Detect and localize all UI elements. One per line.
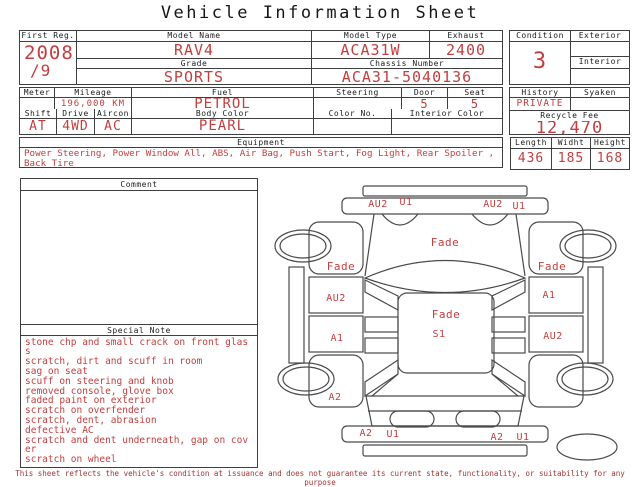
shift-label: Shift [20, 109, 56, 119]
label-front-bumper-left-a: AU2 [368, 199, 388, 210]
exterior-label: Exterior [570, 31, 629, 42]
label-left-rear-door: A1 [330, 333, 343, 344]
rear-slant-left [372, 374, 398, 396]
color-no-label: Color No. [313, 109, 391, 119]
shift-value: AT [20, 119, 56, 134]
equipment-label: Equipment [20, 138, 502, 148]
first-reg-month: /9 [24, 63, 76, 79]
left-rear-wheel [278, 363, 334, 395]
steering-label: Steering [313, 88, 401, 98]
body-color-value: PEARL [131, 119, 313, 134]
meter-label: Meter [20, 88, 54, 98]
width-label: Widht [551, 138, 590, 149]
interior-label: Interior [570, 57, 629, 69]
label-left-front-door: AU2 [326, 293, 346, 304]
steering-value [313, 98, 401, 109]
door-value: 5 [401, 98, 447, 109]
comment-text [21, 191, 257, 324]
condition-table: Condition 3 Exterior Interior [509, 30, 630, 85]
left-front-wheel-inner [280, 234, 326, 258]
syaken-label: Syaken [570, 88, 629, 98]
label-roof: Fade [432, 308, 461, 321]
right-sill [588, 267, 603, 363]
model-type-label: Model Type [311, 31, 429, 42]
roof [398, 293, 494, 373]
exhaust-label: Exhaust [429, 31, 502, 42]
left-rear-wheel-inner [283, 367, 329, 391]
label-front-bumper-right-b: U1 [512, 201, 525, 212]
right-rear-window [492, 338, 525, 353]
car-damage-diagram: AU2 U1 AU2 U1 Fade Fade Fade AU2 A1 Fade… [270, 183, 638, 465]
label-right-front-door: A1 [542, 290, 555, 301]
label-front-bumper-left-b: U1 [399, 197, 412, 208]
comment-box: Comment Special Note stone chp and small… [20, 178, 258, 468]
mileage-value: 196,000 KM [54, 98, 131, 109]
interior-color-label: Interior Color [391, 109, 502, 119]
label-rear-bumper-right-b: U1 [516, 432, 529, 443]
right-front-window [492, 317, 525, 332]
model-name-value: RAV4 [76, 42, 311, 59]
label-right-fender: Fade [538, 260, 567, 273]
special-note-item: stone chp and small crack on front glass [25, 338, 253, 358]
chassis-number-value: ACA31-5040136 [311, 69, 502, 84]
exhaust-value: 2400 [429, 42, 502, 59]
history-label: History [510, 88, 570, 98]
history-value: PRIVATE [510, 98, 570, 111]
width-value: 185 [551, 149, 590, 169]
disclaimer-text: This sheet reflects the vehicle's condit… [0, 469, 640, 487]
history-table: History Syaken PRIVATE Recycle Fee 12,47… [509, 87, 630, 135]
grade-value: SPORTS [76, 69, 311, 84]
condition-label: Condition [510, 31, 570, 42]
left-sill [289, 267, 304, 363]
spec-table-upper: Meter Mileage Fuel Steering Door Seat 19… [19, 87, 503, 110]
recycle-fee-value: 12,470 [510, 121, 629, 134]
label-roof-center: S1 [432, 329, 445, 340]
identity-table: First Reg. 2008 /9 Model Name RAV4 Grade… [19, 30, 503, 85]
length-label: Length [511, 138, 551, 149]
rear-lamp-right [456, 411, 500, 427]
right-front-pillar [492, 280, 525, 310]
left-front-window [365, 317, 398, 332]
recycle-fee-label: Recycle Fee [510, 111, 629, 121]
right-rear-wheel-inner [562, 367, 608, 391]
label-right-rear-door: AU2 [543, 331, 563, 342]
right-front-wheel [560, 230, 616, 262]
right-rear-fender [529, 355, 583, 407]
special-note-list: stone chp and small crack on front glass… [21, 336, 257, 467]
rear-lamp-left [390, 411, 434, 427]
comment-label: Comment [21, 179, 257, 191]
length-value: 436 [511, 149, 551, 169]
body-color-label: Body Color [131, 109, 313, 119]
vehicle-information-sheet: Vehicle Information Sheet First Reg. 200… [0, 0, 640, 480]
label-left-rear-fender: A2 [328, 392, 341, 403]
aircon-label: Aircon [94, 109, 131, 119]
rear-slant-right [492, 374, 518, 396]
condition-value: 3 [510, 42, 570, 84]
first-reg-value: 2008 /9 [20, 42, 76, 84]
first-reg-label: First Reg. [20, 31, 76, 42]
windshield [365, 261, 525, 293]
height-value: 168 [590, 149, 629, 169]
hood-edge-left [365, 214, 374, 276]
front-wheel-arch-left [382, 214, 418, 225]
syaken-value [570, 98, 629, 111]
exterior-value [570, 42, 629, 57]
spec-table-lower: Shift Drive Aircon Body Color Color No. … [19, 109, 503, 135]
label-front-bumper-right-a: AU2 [483, 199, 503, 210]
rear-lower-bar [363, 445, 527, 456]
left-front-pillar [365, 280, 398, 310]
special-note-item: scratch on wheel [25, 455, 253, 465]
label-left-fender: Fade [327, 260, 356, 273]
equipment-box: Equipment Power Steering, Power Window A… [19, 137, 503, 168]
mileage-label: Mileage [54, 88, 131, 98]
aircon-value: AC [94, 119, 131, 134]
special-note-item: scratch and dent underneath, gap on cove… [25, 436, 253, 456]
equipment-text: Power Steering, Power Window All, ABS, A… [20, 148, 502, 167]
drive-value: 4WD [56, 119, 94, 134]
right-front-wheel-inner [565, 234, 611, 258]
hood-edge-right [516, 214, 525, 276]
door-label: Door [401, 88, 447, 98]
label-rear-bumper-left-a: A2 [359, 428, 372, 439]
model-name-label: Model Name [76, 31, 311, 42]
height-label: Height [590, 138, 629, 149]
label-hood: Fade [431, 236, 460, 249]
right-front-door [529, 277, 583, 313]
page-title: Vehicle Information Sheet [0, 3, 640, 23]
label-rear-bumper-left-b: U1 [386, 429, 399, 440]
seat-label: Seat [447, 88, 502, 98]
damage-labels: AU2 U1 AU2 U1 Fade Fade Fade AU2 A1 Fade… [326, 197, 566, 443]
meter-value [20, 98, 54, 109]
car-outline [275, 186, 617, 460]
seat-value: 5 [447, 98, 502, 109]
right-rear-wheel [557, 363, 613, 395]
special-note-label: Special Note [21, 324, 257, 336]
fuel-value: PETROL [131, 98, 313, 109]
label-rear-bumper-right-a: A2 [490, 432, 503, 443]
front-wheel-arch-right [472, 214, 508, 225]
chassis-number-label: Chassis Number [311, 59, 502, 69]
grade-label: Grade [76, 59, 311, 69]
fuel-label: Fuel [131, 88, 313, 98]
interior-color-value [391, 119, 502, 134]
dimensions-table: Length Widht Height 436 185 168 [510, 137, 630, 170]
color-no-value [313, 119, 391, 134]
interior-value [570, 69, 629, 84]
model-type-value: ACA31W [311, 42, 429, 59]
left-front-wheel [275, 230, 331, 262]
drive-label: Drive [56, 109, 94, 119]
front-grille-bar [363, 186, 527, 196]
spare-tire [557, 434, 617, 460]
left-rear-window [365, 338, 398, 353]
